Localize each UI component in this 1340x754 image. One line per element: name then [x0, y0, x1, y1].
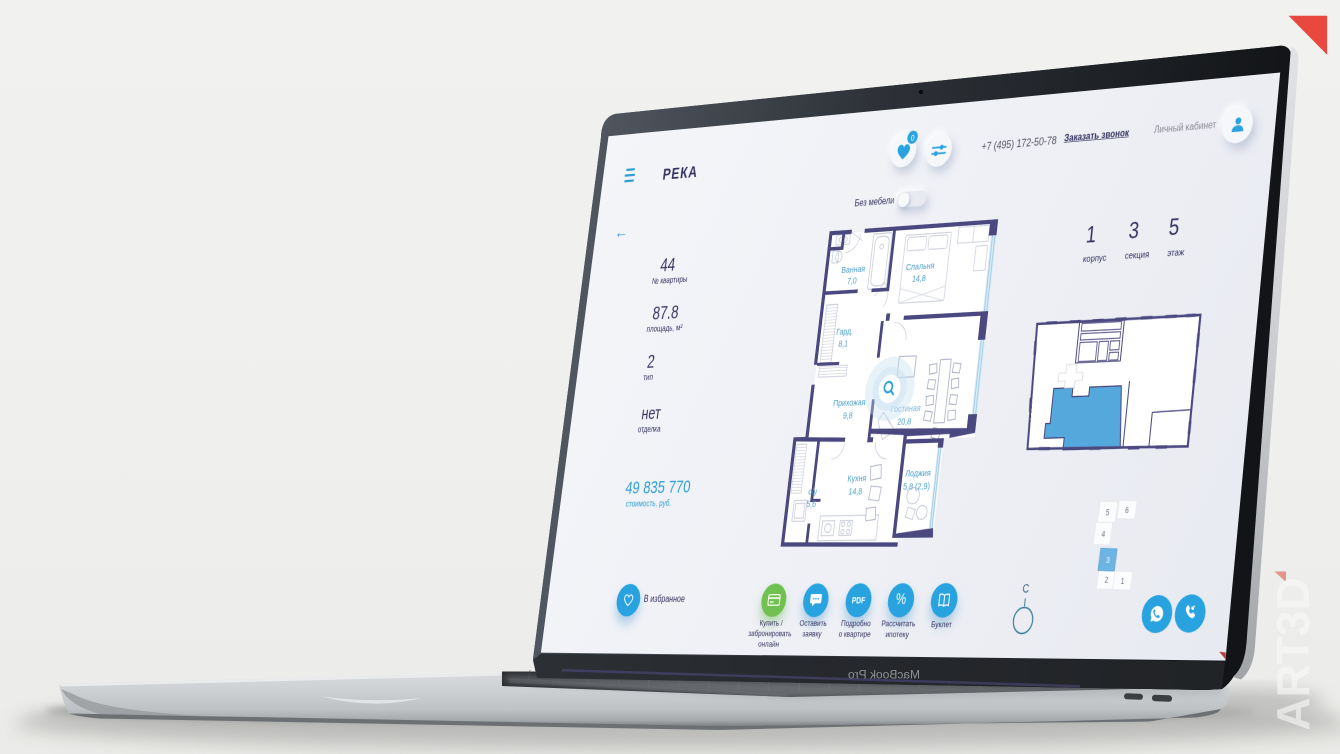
svg-text:MacBook Pro: MacBook Pro: [848, 668, 920, 682]
